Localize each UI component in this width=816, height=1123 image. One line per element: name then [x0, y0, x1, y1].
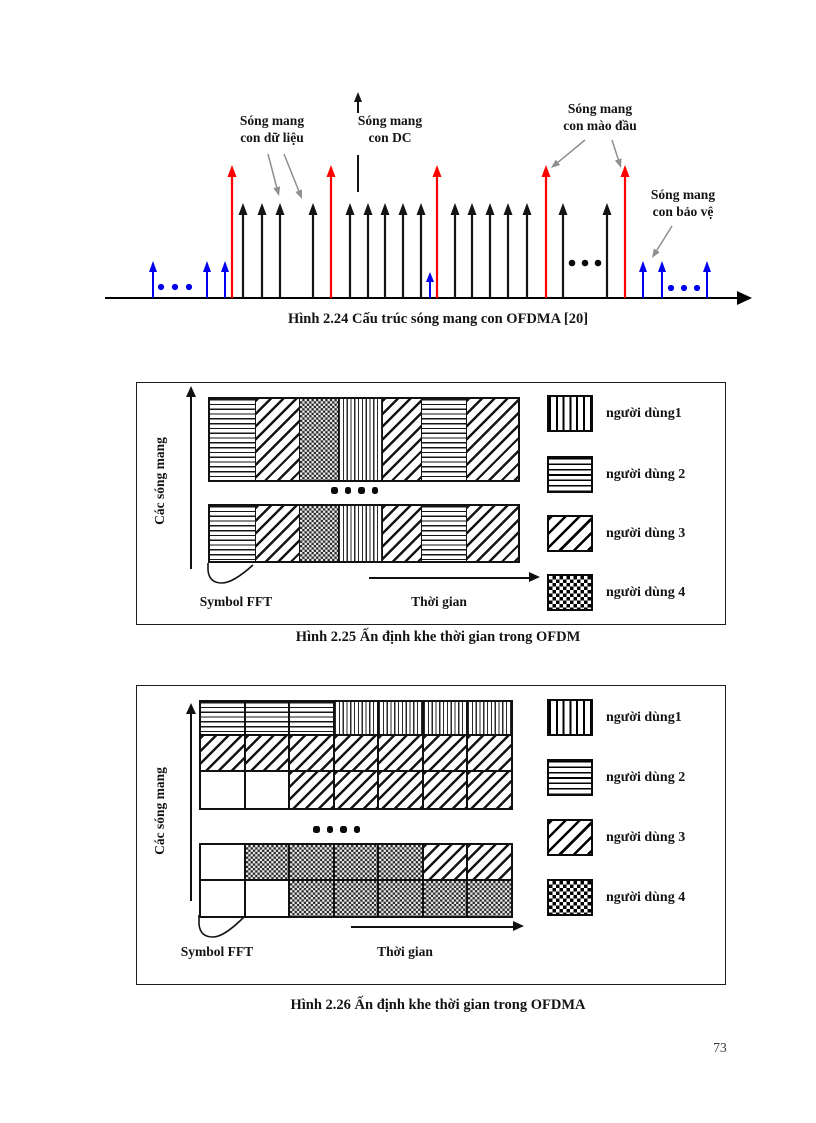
figure-ofdma-subcarrier-structure: Sóng mang con dữ liệu Sóng mang con DC S… — [0, 0, 816, 345]
slot-cell-d — [423, 771, 468, 809]
slot-cell-h — [200, 701, 245, 735]
subcarrier-diagram — [0, 0, 816, 345]
bar-segment-v — [338, 506, 381, 561]
y-axis-label: Các sóng mang — [152, 401, 170, 561]
dot — [345, 487, 352, 494]
legend-label: người dùng 2 — [606, 770, 685, 786]
legend-row: người dùng 3 — [547, 819, 685, 856]
bar-segment-d — [382, 506, 421, 561]
slot-cell-c — [289, 844, 334, 880]
bar-segment-d — [382, 399, 421, 480]
dot — [340, 826, 347, 833]
slot-cell-w — [200, 880, 245, 917]
bar-segment-d — [466, 399, 518, 480]
slot-cell-d — [378, 771, 423, 809]
slot-cell-d — [334, 771, 379, 809]
slot-cell-c — [245, 844, 290, 880]
time-axis-arrow — [351, 926, 513, 928]
figure-2-25-caption: Hình 2.25 Ấn định khe thời gian trong OF… — [130, 629, 746, 646]
y-axis-label: Các sóng mang — [152, 731, 170, 891]
slot-cell-h — [245, 701, 290, 735]
slot-cell-d — [334, 735, 379, 771]
subcarrier-axis-arrow — [190, 396, 192, 569]
slot-cell-d — [423, 844, 468, 880]
figure-ofdm-timeslot-box: Các sóng mang Symbol FFT Thời gian người… — [136, 382, 726, 625]
fft-symbol-brace — [198, 914, 246, 942]
slot-cell-d — [378, 735, 423, 771]
bar-segment-c — [299, 399, 338, 480]
slot-cell-d — [289, 735, 334, 771]
ellipsis-dots — [331, 487, 378, 494]
time-axis-arrow — [369, 577, 529, 579]
legend-label: người dùng 3 — [606, 526, 685, 542]
slot-cell-d — [423, 735, 468, 771]
legend-swatch-c — [547, 879, 593, 916]
figure-ofdma-timeslot-box: Các sóng mang Symbol FFT Thời gian người… — [136, 685, 726, 985]
slot-grid-top — [199, 700, 513, 810]
bar-segment-h — [421, 399, 465, 480]
slot-cell-c — [378, 880, 423, 917]
ellipsis-dots — [313, 826, 360, 833]
slot-cell-d — [200, 735, 245, 771]
subcarrier-axis-arrow — [190, 713, 192, 901]
legend-row: người dùng1 — [547, 699, 682, 736]
dot — [358, 487, 365, 494]
bar-segment-h — [210, 399, 255, 480]
slot-cell-v — [423, 701, 468, 735]
legend-swatch-v — [547, 699, 593, 736]
legend-row: người dùng 2 — [547, 456, 685, 493]
bar-segment-h — [421, 506, 465, 561]
legend-label: người dùng 4 — [606, 890, 685, 906]
legend-label: người dùng 4 — [606, 585, 685, 601]
page-number: 73 — [690, 1040, 750, 1056]
slot-cell-c — [334, 880, 379, 917]
legend-swatch-h — [547, 456, 593, 493]
dot — [327, 826, 334, 833]
legend-swatch-v — [547, 395, 593, 432]
slot-cell-c — [423, 880, 468, 917]
time-axis-label: Thời gian — [325, 943, 485, 960]
legend-row: người dùng 3 — [547, 515, 685, 552]
slot-cell-w — [200, 771, 245, 809]
slot-cell-v — [467, 701, 512, 735]
slot-cell-c — [467, 880, 512, 917]
label-guard-subcarrier: Sóng mang con bảo vệ — [603, 186, 763, 220]
bar-segment-h — [210, 506, 255, 561]
legend-row: người dùng 4 — [547, 879, 685, 916]
legend-label: người dùng 3 — [606, 830, 685, 846]
bar-segment-d — [255, 399, 298, 480]
slot-cell-h — [289, 701, 334, 735]
legend-row: người dùng 4 — [547, 574, 685, 611]
legend-swatch-d — [547, 819, 593, 856]
legend-row: người dùng1 — [547, 395, 682, 432]
fft-symbol-brace — [207, 562, 255, 588]
slot-grid-bottom — [199, 843, 513, 918]
bar-segment-v — [338, 399, 381, 480]
time-axis-label: Thời gian — [359, 593, 519, 610]
slot-cell-d — [245, 735, 290, 771]
figure-2-24-caption: Hình 2.24 Cấu trúc sóng mang con OFDMA [… — [130, 311, 746, 328]
legend-label: người dùng1 — [606, 710, 682, 726]
dot — [331, 487, 338, 494]
slot-cell-d — [467, 844, 512, 880]
bar-segment-d — [466, 506, 518, 561]
slot-cell-c — [334, 844, 379, 880]
legend-row: người dùng 2 — [547, 759, 685, 796]
slot-cell-d — [289, 771, 334, 809]
label-preamble-subcarrier: Sóng mang con mào đầu — [520, 100, 680, 134]
legend-label: người dùng1 — [606, 406, 682, 422]
slot-cell-c — [378, 844, 423, 880]
fft-symbol-label: Symbol FFT — [137, 943, 297, 960]
slot-cell-d — [467, 735, 512, 771]
slot-cell-w — [245, 880, 290, 917]
figure-2-26-caption: Hình 2.26 Ấn định khe thời gian trong OF… — [130, 997, 746, 1014]
slot-cell-v — [334, 701, 379, 735]
dot — [354, 826, 361, 833]
dot — [372, 487, 379, 494]
bar-segment-c — [299, 506, 338, 561]
legend-swatch-h — [547, 759, 593, 796]
legend-swatch-c — [547, 574, 593, 611]
slot-cell-c — [289, 880, 334, 917]
legend-swatch-d — [547, 515, 593, 552]
slot-cell-w — [245, 771, 290, 809]
fft-symbol-label: Symbol FFT — [156, 593, 316, 610]
slot-cell-d — [467, 771, 512, 809]
label-dc-subcarrier: Sóng mang con DC — [310, 112, 470, 146]
document-page: Sóng mang con dữ liệu Sóng mang con DC S… — [0, 0, 816, 1123]
slot-cell-v — [378, 701, 423, 735]
ofdm-symbol-bar-top — [208, 397, 520, 482]
ofdm-symbol-bar-bottom — [208, 504, 520, 563]
dot — [313, 826, 320, 833]
bar-segment-d — [255, 506, 298, 561]
slot-cell-w — [200, 844, 245, 880]
legend-label: người dùng 2 — [606, 467, 685, 483]
